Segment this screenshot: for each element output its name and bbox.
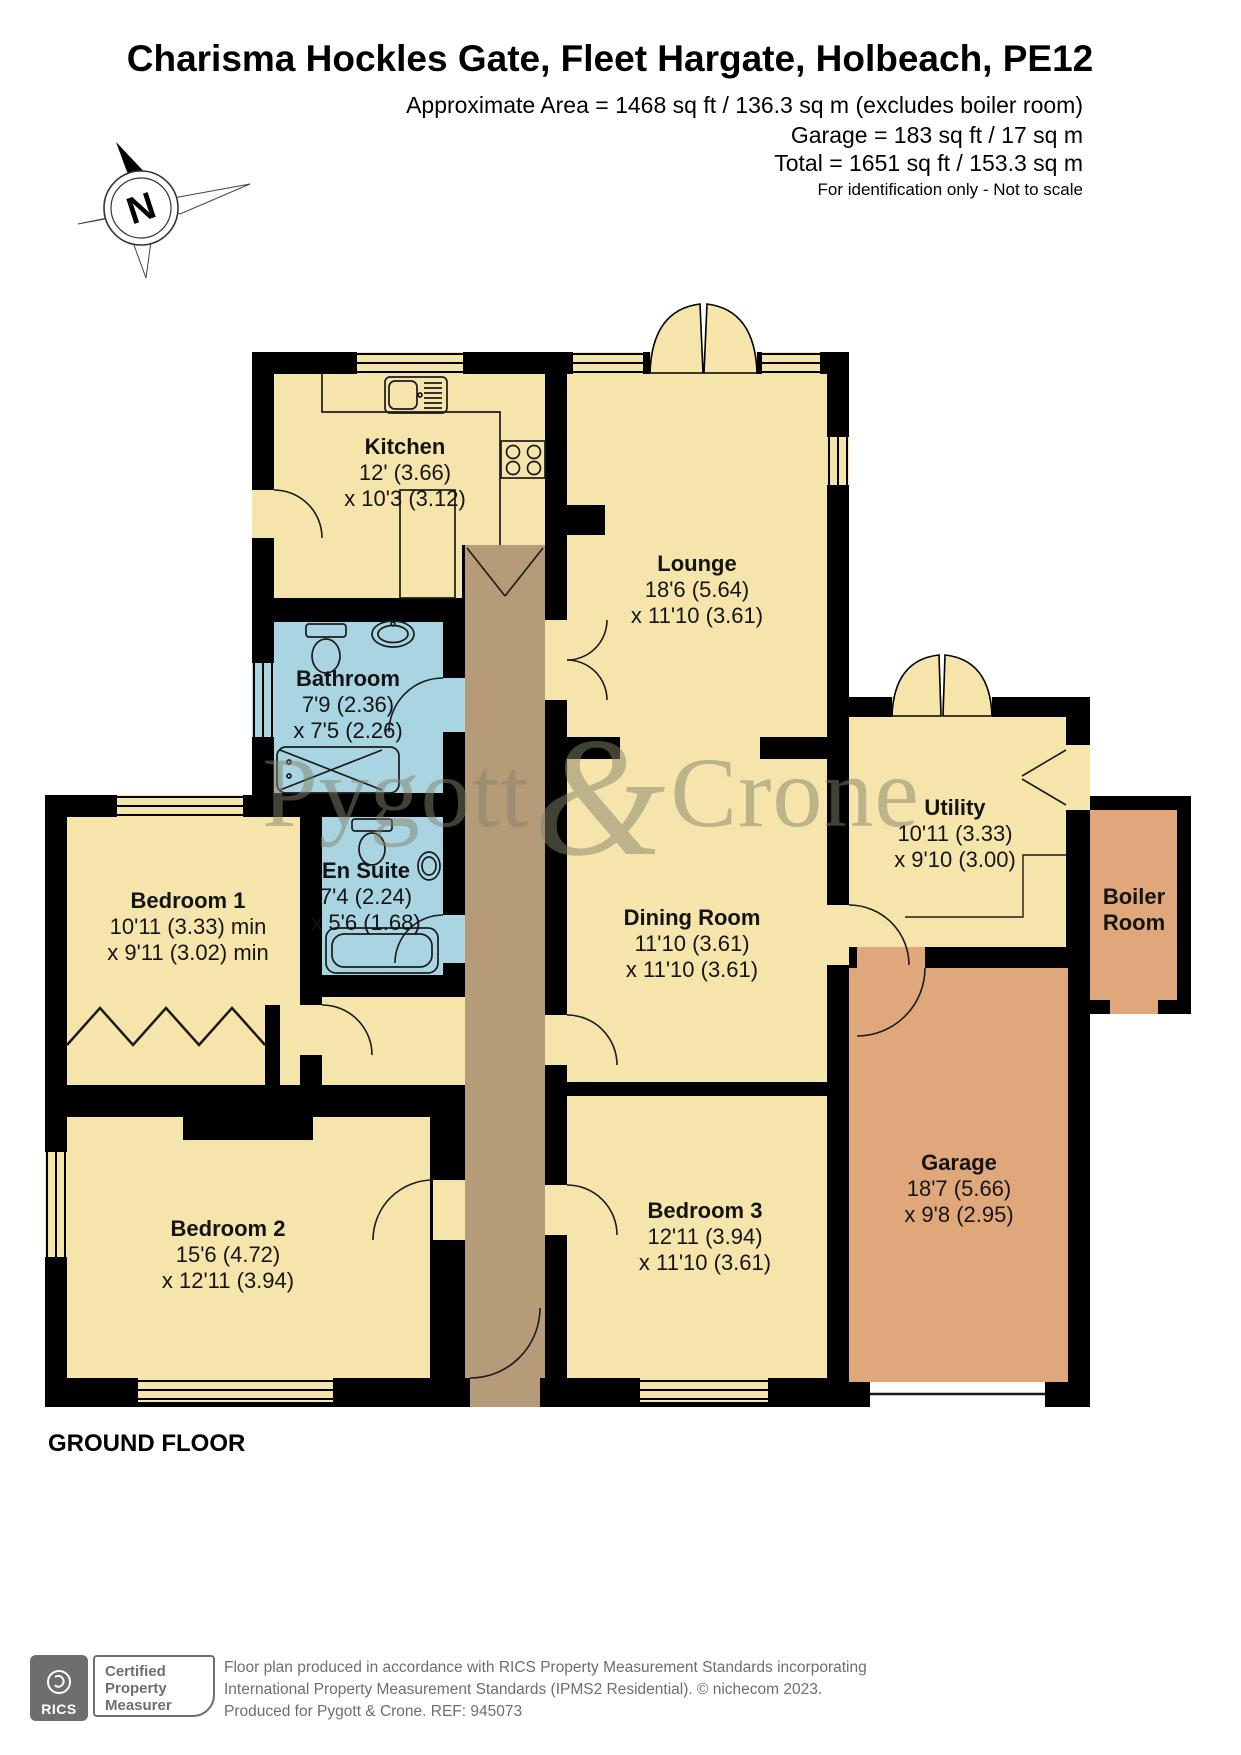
window-bedroom2-left	[45, 1152, 67, 1257]
approx-area-text: Approximate Area = 1468 sq ft / 136.3 sq…	[406, 92, 1083, 119]
window-bathroom-left	[252, 663, 274, 737]
room-label-lounge: Lounge 18'6 (5.64) x 11'10 (3.61)	[631, 551, 763, 629]
floorplan-page: N Charisma Hockles Gate, Fleet Hargate, …	[0, 0, 1241, 1755]
lounge-french-door-left	[650, 304, 703, 373]
garage-area-text: Garage = 183 sq ft / 17 sq m	[791, 122, 1083, 149]
certified-measurer-badge: Certified Property Measurer	[93, 1655, 215, 1717]
window-bedroom1-top	[117, 795, 243, 817]
page-title: Charisma Hockles Gate, Fleet Hargate, Ho…	[0, 38, 1220, 80]
hallway-floor	[465, 545, 545, 1378]
lounge-french-door-right	[704, 304, 757, 373]
rics-logo: RICS	[30, 1655, 88, 1721]
window-lounge-right	[827, 437, 849, 485]
room-label-garage: Garage 18'7 (5.66) x 9'8 (2.95)	[904, 1150, 1013, 1228]
utility-french-door-right	[943, 655, 992, 716]
window-bedroom2-bottom	[138, 1378, 333, 1402]
room-label-kitchen: Kitchen 12' (3.66) x 10'3 (3.12)	[344, 434, 466, 512]
room-label-bedroom1: Bedroom 1 10'11 (3.33) min x 9'11 (3.02)…	[107, 888, 269, 966]
compass-icon: N	[78, 142, 250, 278]
footer-line2: International Property Measurement Stand…	[224, 1679, 867, 1701]
window-lounge-top-right	[762, 352, 820, 374]
window-bedroom3-bottom	[640, 1378, 768, 1402]
room-label-bedroom2: Bedroom 2 15'6 (4.72) x 12'11 (3.94)	[162, 1216, 294, 1294]
total-area-text: Total = 1651 sq ft / 153.3 sq m	[774, 150, 1083, 177]
badge-line1: Certified	[105, 1663, 213, 1680]
window-kitchen-top	[357, 352, 463, 374]
footer-line3: Produced for Pygott & Crone. REF: 945073	[224, 1701, 867, 1723]
room-label-dining: Dining Room 11'10 (3.61) x 11'10 (3.61)	[624, 905, 761, 983]
room-label-ensuite: En Suite 7'4 (2.24) x 5'6 (1.68)	[311, 858, 420, 936]
window-lounge-top-left	[573, 352, 643, 374]
footer-disclaimer: Floor plan produced in accordance with R…	[224, 1657, 867, 1723]
rics-lion-icon	[42, 1667, 76, 1701]
room-kitchen-floor2	[274, 545, 462, 598]
room-label-utility: Utility 10'11 (3.33) x 9'10 (3.00)	[894, 795, 1016, 873]
rics-logo-text: RICS	[41, 1701, 76, 1717]
footer-line1: Floor plan produced in accordance with R…	[224, 1657, 867, 1679]
room-label-bathroom: Bathroom 7'9 (2.36) x 7'5 (2.26)	[293, 666, 402, 744]
room-label-boiler: Boiler Room	[1079, 884, 1189, 936]
badge-line3: Measurer	[105, 1697, 213, 1714]
badge-line2: Property	[105, 1680, 213, 1697]
floorplan-drawing: N	[0, 0, 1241, 1755]
footer: RICS Certified Property Measurer Floor p…	[0, 1648, 1241, 1738]
floor-label: GROUND FLOOR	[48, 1430, 245, 1458]
disclaimer-text: For identification only - Not to scale	[817, 180, 1083, 200]
room-label-bedroom3: Bedroom 3 12'11 (3.94) x 11'10 (3.61)	[639, 1198, 771, 1276]
utility-french-door-left	[892, 655, 941, 716]
lounge-dining-opening	[620, 737, 760, 759]
